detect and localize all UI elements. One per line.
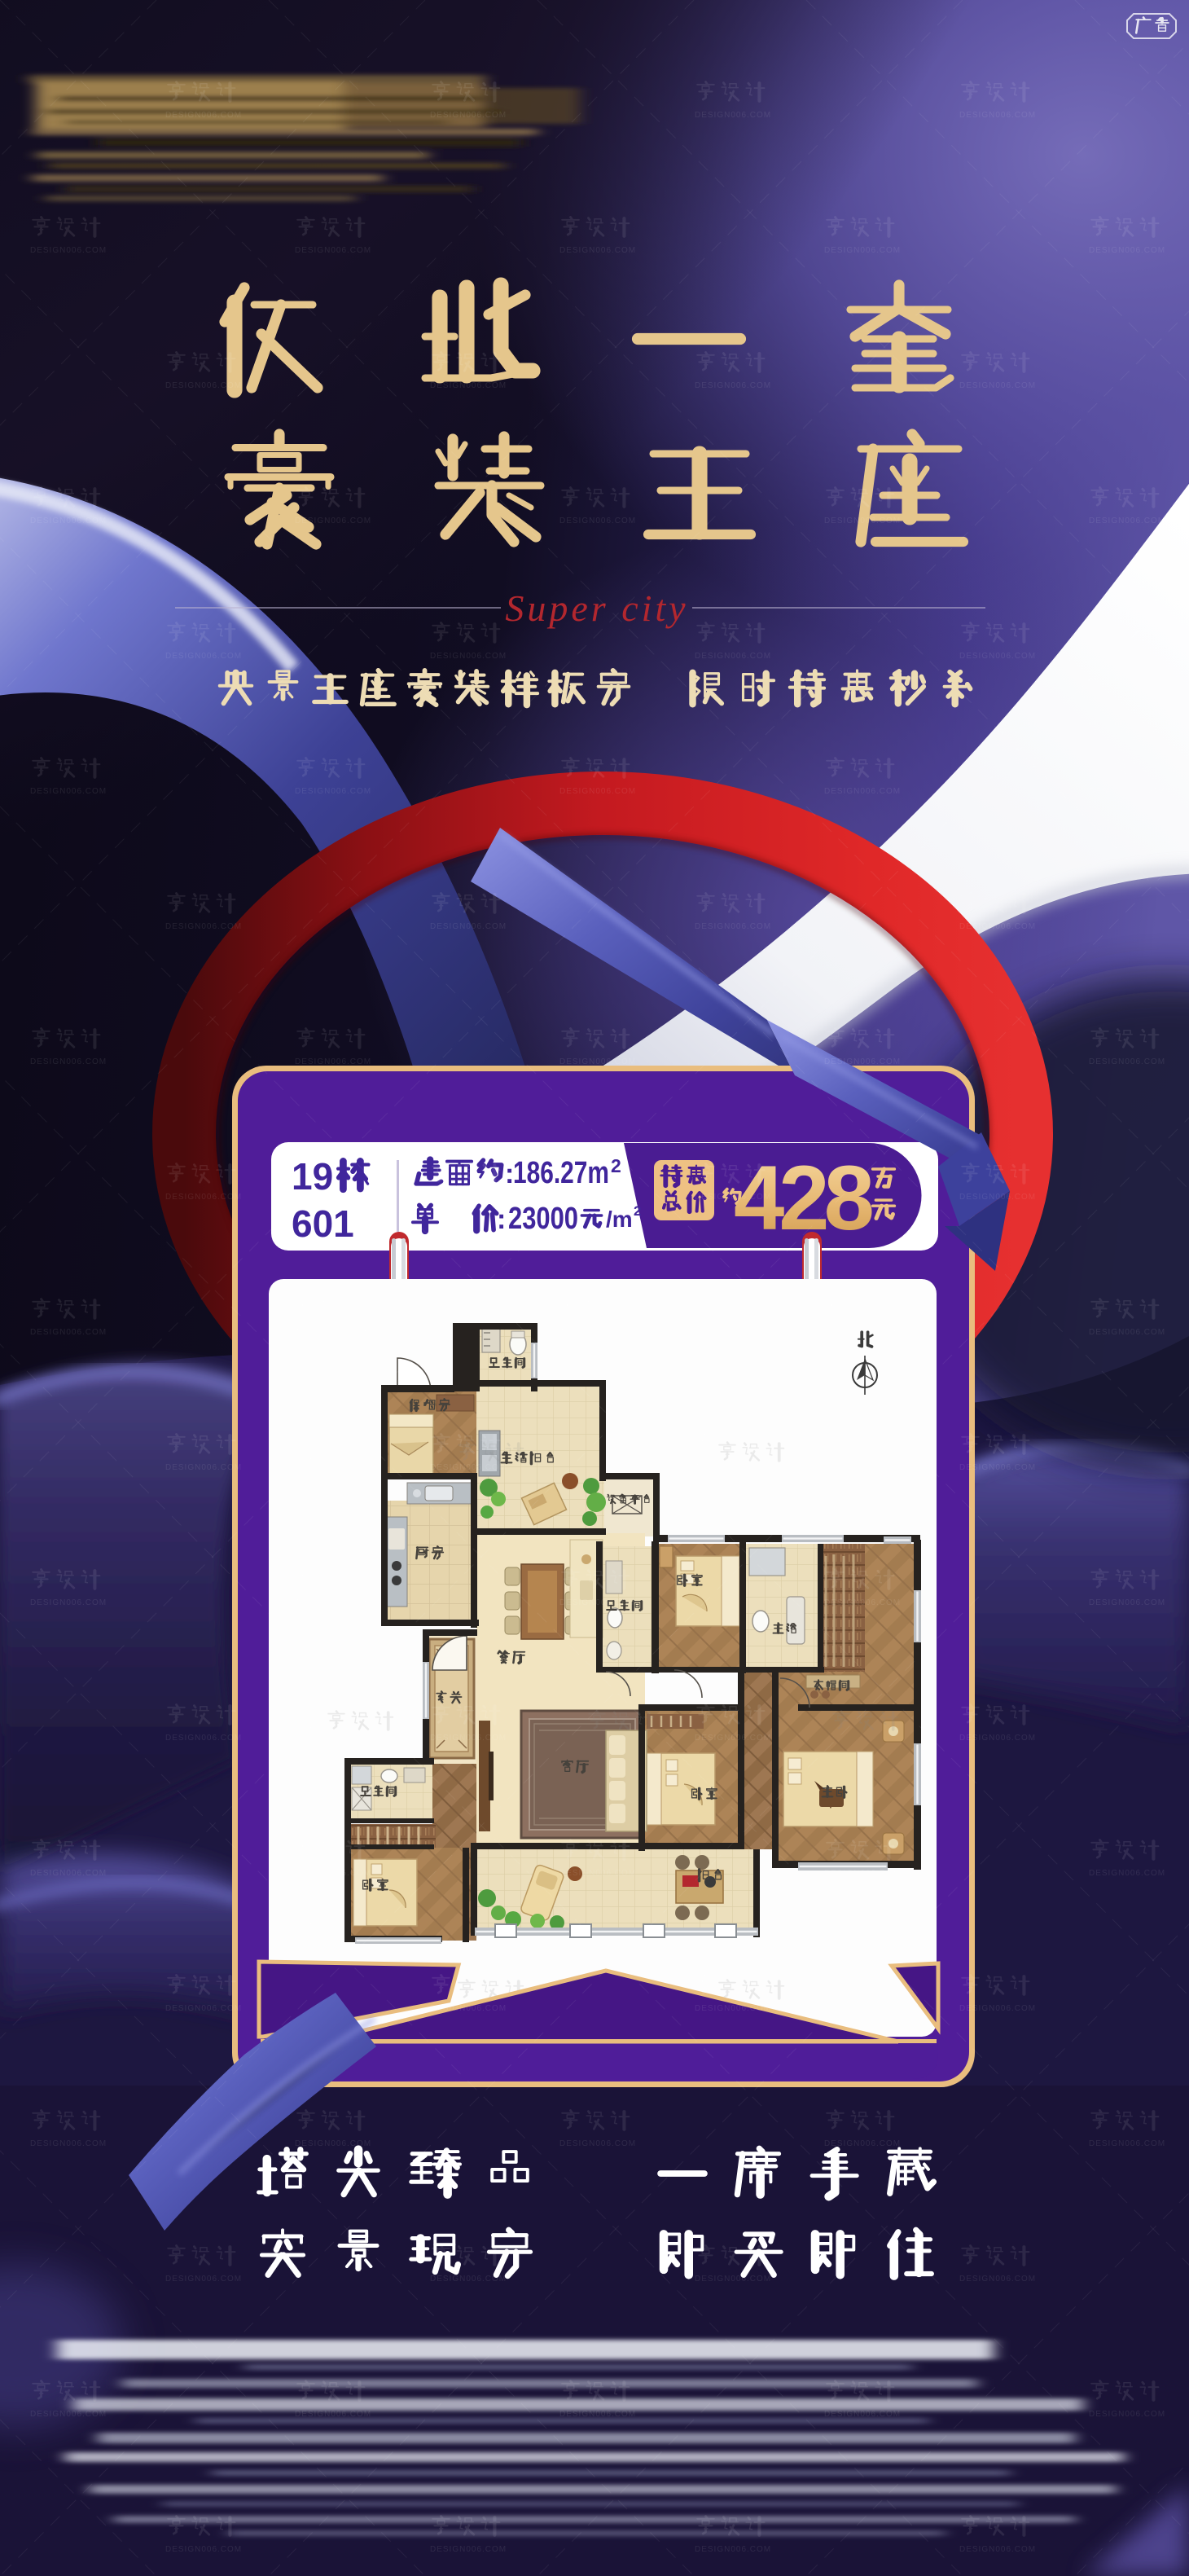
svg-text:DESIGN006.COM: DESIGN006.COM [295, 2410, 371, 2419]
svg-text:/m: /m [606, 1207, 633, 1232]
svg-text:DESIGN006.COM: DESIGN006.COM [295, 787, 371, 796]
svg-text:DESIGN006.COM: DESIGN006.COM [959, 1193, 1036, 1202]
svg-text:DESIGN006.COM: DESIGN006.COM [30, 1598, 107, 1607]
svg-text:DESIGN006.COM: DESIGN006.COM [430, 1734, 507, 1743]
svg-text:DESIGN006.COM: DESIGN006.COM [295, 1328, 371, 1337]
svg-text:DESIGN006.COM: DESIGN006.COM [695, 111, 771, 120]
svg-text:DESIGN006.COM: DESIGN006.COM [165, 2275, 242, 2284]
svg-text:DESIGN006.COM: DESIGN006.COM [695, 2004, 771, 2013]
svg-text:DESIGN006.COM: DESIGN006.COM [165, 1193, 242, 1202]
svg-text:DESIGN006.COM: DESIGN006.COM [959, 2275, 1036, 2284]
svg-text:DESIGN006.COM: DESIGN006.COM [1089, 1328, 1165, 1337]
svg-text::: : [497, 1204, 506, 1235]
svg-text:DESIGN006.COM: DESIGN006.COM [959, 111, 1036, 120]
svg-text:DESIGN006.COM: DESIGN006.COM [295, 517, 371, 525]
svg-text:DESIGN006.COM: DESIGN006.COM [295, 1057, 371, 1066]
svg-text:DESIGN006.COM: DESIGN006.COM [30, 246, 107, 255]
svg-text:DESIGN006.COM: DESIGN006.COM [165, 1463, 242, 1472]
svg-text:DESIGN006.COM: DESIGN006.COM [295, 246, 371, 255]
svg-text:DESIGN006.COM: DESIGN006.COM [30, 1869, 107, 1878]
svg-text:DESIGN006.COM: DESIGN006.COM [430, 381, 507, 390]
svg-text:DESIGN006.COM: DESIGN006.COM [430, 2545, 507, 2554]
svg-text:DESIGN006.COM: DESIGN006.COM [559, 1598, 636, 1607]
svg-text:DESIGN006.COM: DESIGN006.COM [695, 922, 771, 931]
svg-text:DESIGN006.COM: DESIGN006.COM [430, 922, 507, 931]
svg-text:DESIGN006.COM: DESIGN006.COM [959, 922, 1036, 931]
svg-text:DESIGN006.COM: DESIGN006.COM [559, 1057, 636, 1066]
svg-text:DESIGN006.COM: DESIGN006.COM [1089, 517, 1165, 525]
svg-text:DESIGN006.COM: DESIGN006.COM [959, 2004, 1036, 2013]
svg-text:2: 2 [611, 1155, 621, 1176]
svg-text:DESIGN006.COM: DESIGN006.COM [295, 1598, 371, 1607]
svg-text:DESIGN006.COM: DESIGN006.COM [695, 381, 771, 390]
svg-text:DESIGN006.COM: DESIGN006.COM [430, 2004, 507, 2013]
svg-text:DESIGN006.COM: DESIGN006.COM [559, 517, 636, 525]
svg-text:DESIGN006.COM: DESIGN006.COM [824, 1598, 901, 1607]
svg-text:DESIGN006.COM: DESIGN006.COM [165, 2545, 242, 2554]
svg-text:DESIGN006.COM: DESIGN006.COM [1089, 246, 1165, 255]
svg-text:DESIGN006.COM: DESIGN006.COM [695, 1734, 771, 1743]
svg-text:DESIGN006.COM: DESIGN006.COM [559, 2139, 636, 2148]
svg-text:DESIGN006.COM: DESIGN006.COM [559, 246, 636, 255]
svg-text:DESIGN006.COM: DESIGN006.COM [165, 1734, 242, 1743]
svg-text:DESIGN006.COM: DESIGN006.COM [824, 1869, 901, 1878]
svg-text:186.27m: 186.27m [513, 1156, 609, 1190]
svg-text:DESIGN006.COM: DESIGN006.COM [30, 2410, 107, 2419]
svg-text:DESIGN006.COM: DESIGN006.COM [695, 2275, 771, 2284]
svg-text:DESIGN006.COM: DESIGN006.COM [559, 787, 636, 796]
svg-text:DESIGN006.COM: DESIGN006.COM [824, 787, 901, 796]
svg-text:19: 19 [292, 1155, 333, 1198]
svg-text:DESIGN006.COM: DESIGN006.COM [1089, 787, 1165, 796]
svg-text:DESIGN006.COM: DESIGN006.COM [824, 517, 901, 525]
svg-text:DESIGN006.COM: DESIGN006.COM [430, 111, 507, 120]
svg-text:DESIGN006.COM: DESIGN006.COM [695, 652, 771, 661]
svg-text:23000: 23000 [508, 1202, 578, 1236]
svg-text:DESIGN006.COM: DESIGN006.COM [295, 2139, 371, 2148]
svg-text:DESIGN006.COM: DESIGN006.COM [30, 1057, 107, 1066]
svg-text:DESIGN006.COM: DESIGN006.COM [1089, 2139, 1165, 2148]
svg-text:DESIGN006.COM: DESIGN006.COM [959, 2545, 1036, 2554]
svg-text:DESIGN006.COM: DESIGN006.COM [824, 2410, 901, 2419]
svg-text:DESIGN006.COM: DESIGN006.COM [1089, 2410, 1165, 2419]
svg-text:DESIGN006.COM: DESIGN006.COM [824, 246, 901, 255]
svg-text:DESIGN006.COM: DESIGN006.COM [1089, 1057, 1165, 1066]
svg-text:DESIGN006.COM: DESIGN006.COM [165, 652, 242, 661]
svg-text:DESIGN006.COM: DESIGN006.COM [165, 381, 242, 390]
svg-text:DESIGN006.COM: DESIGN006.COM [695, 1463, 771, 1472]
svg-text:DESIGN006.COM: DESIGN006.COM [430, 1463, 507, 1472]
svg-text:DESIGN006.COM: DESIGN006.COM [1089, 1869, 1165, 1878]
svg-text:DESIGN006.COM: DESIGN006.COM [559, 1869, 636, 1878]
svg-text:DESIGN006.COM: DESIGN006.COM [430, 652, 507, 661]
svg-text:DESIGN006.COM: DESIGN006.COM [559, 1328, 636, 1337]
svg-text:DESIGN006.COM: DESIGN006.COM [430, 2275, 507, 2284]
svg-text:DESIGN006.COM: DESIGN006.COM [959, 1734, 1036, 1743]
svg-text:Super city: Super city [505, 587, 688, 629]
svg-text:DESIGN006.COM: DESIGN006.COM [30, 2139, 107, 2148]
svg-text:DESIGN006.COM: DESIGN006.COM [30, 1328, 107, 1337]
svg-text:DESIGN006.COM: DESIGN006.COM [959, 1463, 1036, 1472]
svg-text:DESIGN006.COM: DESIGN006.COM [1089, 1598, 1165, 1607]
svg-text:DESIGN006.COM: DESIGN006.COM [30, 787, 107, 796]
svg-text:DESIGN006.COM: DESIGN006.COM [959, 381, 1036, 390]
svg-text:2: 2 [634, 1203, 641, 1219]
svg-text:DESIGN006.COM: DESIGN006.COM [824, 2139, 901, 2148]
svg-text:601: 601 [292, 1202, 354, 1245]
svg-text:DESIGN006.COM: DESIGN006.COM [559, 2410, 636, 2419]
svg-text:DESIGN006.COM: DESIGN006.COM [824, 1057, 901, 1066]
svg-text:DESIGN006.COM: DESIGN006.COM [959, 652, 1036, 661]
svg-text:DESIGN006.COM: DESIGN006.COM [30, 517, 107, 525]
svg-text:DESIGN006.COM: DESIGN006.COM [165, 111, 242, 120]
svg-text:DESIGN006.COM: DESIGN006.COM [295, 1869, 371, 1878]
svg-text:DESIGN006.COM: DESIGN006.COM [695, 1193, 771, 1202]
svg-text:DESIGN006.COM: DESIGN006.COM [165, 2004, 242, 2013]
svg-text:DESIGN006.COM: DESIGN006.COM [824, 1328, 901, 1337]
svg-text:DESIGN006.COM: DESIGN006.COM [430, 1193, 507, 1202]
svg-text:DESIGN006.COM: DESIGN006.COM [695, 2545, 771, 2554]
svg-text:DESIGN006.COM: DESIGN006.COM [165, 922, 242, 931]
